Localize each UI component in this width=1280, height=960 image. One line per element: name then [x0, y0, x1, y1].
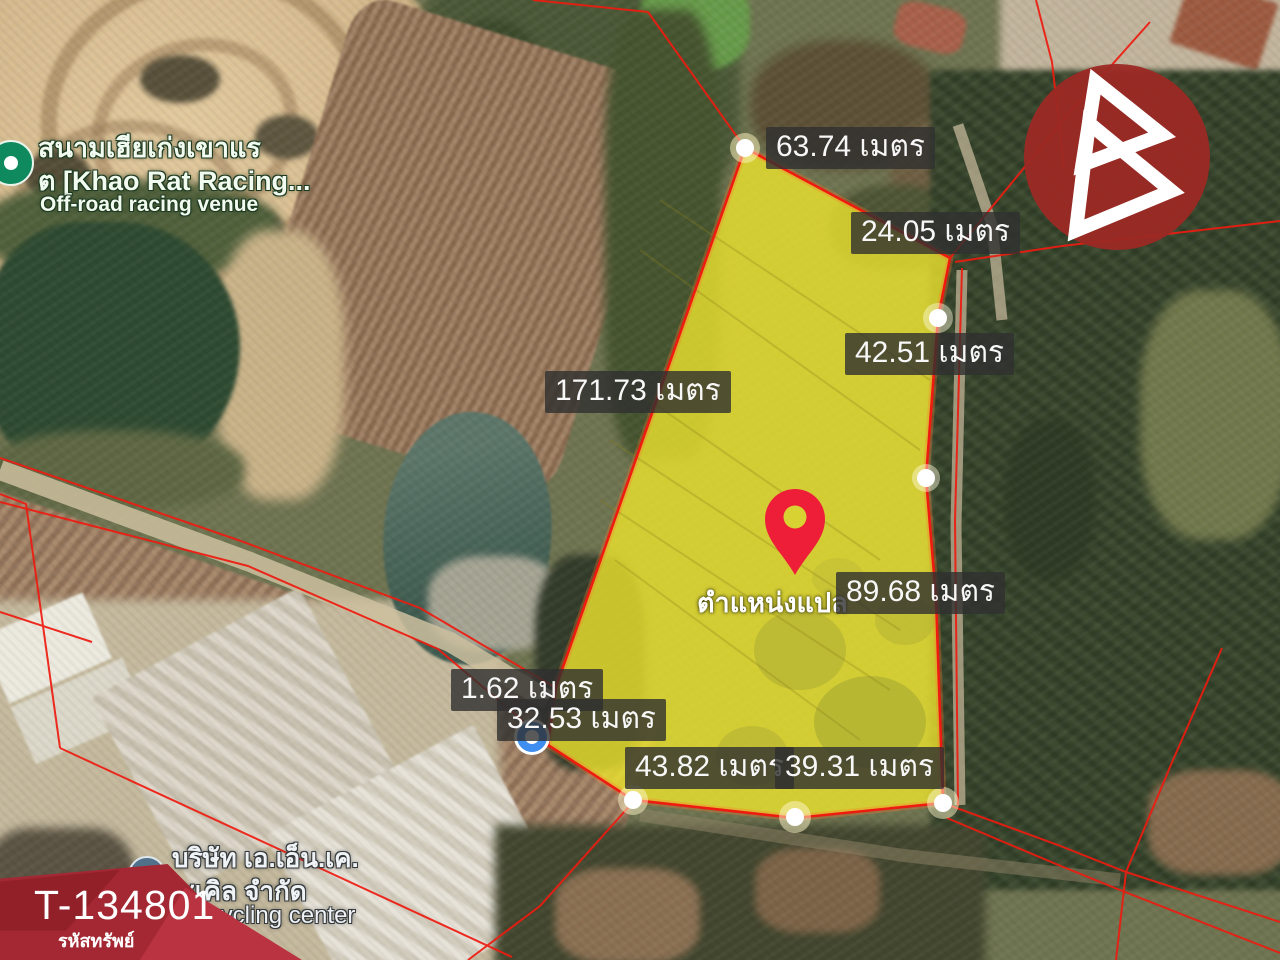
brand-logo-monogram [1024, 64, 1210, 250]
measurement-label-39-31: 39.31 เมตร [775, 747, 944, 789]
measurement-label-32-53: 32.53 เมตร [497, 699, 666, 741]
property-code-caption: รหัสทรัพย์ [58, 926, 134, 955]
racing-venue-category: Off-road racing venue [40, 193, 258, 217]
measurement-label-63-74: 63.74 เมตร [766, 127, 935, 169]
measurement-label-42-51: 42.51 เมตร [845, 333, 1014, 375]
satellite-map[interactable]: สนามเฮียเก่งเขาแร ต [Khao Rat Racing... … [0, 0, 1280, 960]
measurement-label-43-82: 43.82 เมตร [625, 747, 794, 789]
measurement-label-171-73: 171.73 เมตร [545, 371, 731, 413]
measurement-label-89-68: 89.68 เมตร [836, 572, 1005, 614]
plot-marker-caption: ตำแหน่งแปล [697, 581, 848, 624]
road-west [0, 470, 548, 700]
measurement-label-24-05: 24.05 เมตร [851, 212, 1020, 254]
brand-logo [1024, 64, 1210, 250]
road-south [640, 815, 1120, 880]
property-code: T-134801 [34, 882, 215, 929]
